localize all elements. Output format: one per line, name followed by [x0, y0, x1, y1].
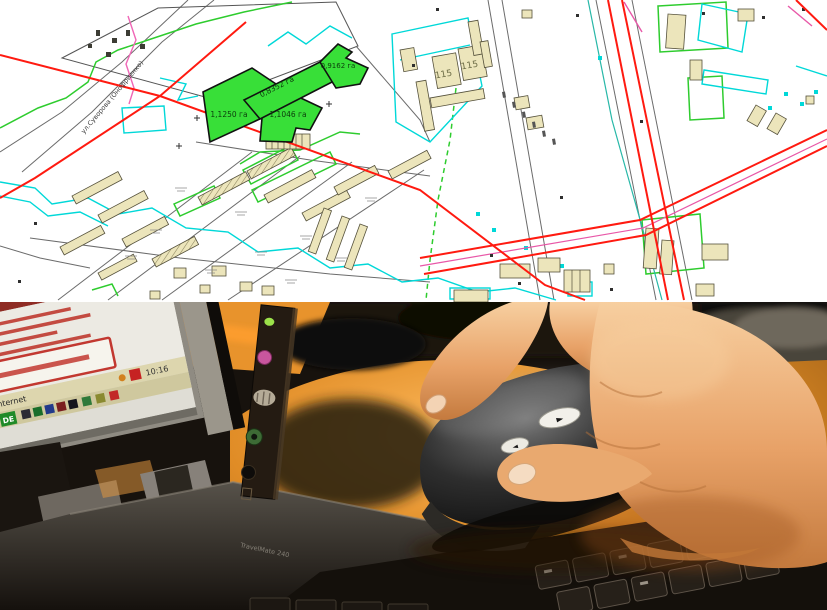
photo-panel: Internet 10:16 DE TravelMate 240 [0, 302, 827, 610]
parcel-1-area-label: 1,1250 га [210, 110, 247, 119]
photo-hand-mouse-laptop: Internet 10:16 DE TravelMate 240 [0, 302, 827, 610]
cadastral-map: 1,1250 га 1,1046 га 0,8352 га 0,9162 га … [0, 0, 827, 302]
dark-object [278, 318, 426, 370]
composite-image: 1,1250 га 1,1046 га 0,8352 га 0,9162 га … [0, 0, 827, 610]
parcel-4-area-label: 0,9162 га [321, 62, 356, 70]
hand-lower-shadow [580, 496, 800, 572]
cadastral-map-panel: 1,1250 га 1,1046 га 0,8352 га 0,9162 га … [0, 0, 827, 302]
tray-icon-red [129, 368, 142, 381]
parcel-2-area-label: 1,1046 га [269, 110, 306, 119]
